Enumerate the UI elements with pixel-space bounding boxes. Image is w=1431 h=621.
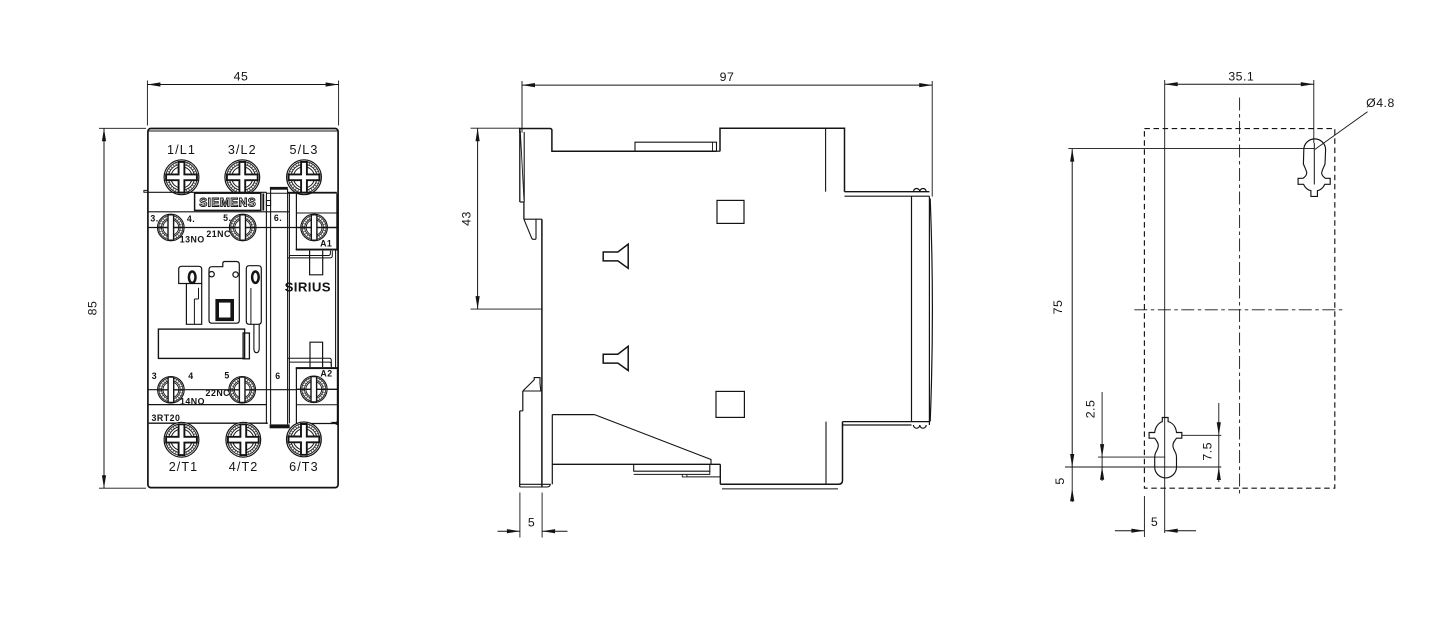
svg-text:4/T2: 4/T2 <box>229 460 259 474</box>
svg-text:5: 5 <box>528 516 535 530</box>
svg-text:7.5: 7.5 <box>1201 442 1215 461</box>
svg-text:Ø4.8: Ø4.8 <box>1366 96 1395 110</box>
svg-text:1/L1: 1/L1 <box>167 143 196 157</box>
svg-text:22NC: 22NC <box>206 388 231 398</box>
svg-text:2.5: 2.5 <box>1083 400 1097 419</box>
svg-text:43: 43 <box>459 211 473 226</box>
svg-text:6/T3: 6/T3 <box>289 460 319 474</box>
svg-text:5: 5 <box>1053 477 1067 484</box>
svg-text:SIRIUS: SIRIUS <box>285 280 331 295</box>
svg-text:5: 5 <box>1151 515 1158 529</box>
svg-text:97: 97 <box>720 70 735 84</box>
svg-text:6.: 6. <box>274 213 282 223</box>
svg-text:A1: A1 <box>320 239 332 249</box>
svg-text:45: 45 <box>234 70 249 84</box>
svg-text:SIEMENS: SIEMENS <box>199 196 256 210</box>
svg-text:3/L2: 3/L2 <box>228 143 257 157</box>
svg-text:4: 4 <box>188 371 193 381</box>
svg-text:A2: A2 <box>320 369 332 379</box>
svg-text:35.1: 35.1 <box>1228 70 1254 84</box>
svg-text:2/T1: 2/T1 <box>169 460 199 474</box>
svg-text:3: 3 <box>152 371 157 381</box>
svg-text:13NO: 13NO <box>180 235 205 245</box>
svg-text:5.: 5. <box>223 213 231 223</box>
svg-text:3RT20: 3RT20 <box>152 413 181 423</box>
svg-text:4.: 4. <box>187 214 195 224</box>
svg-text:5: 5 <box>224 371 229 381</box>
svg-text:3.: 3. <box>150 214 158 224</box>
svg-text:75: 75 <box>1051 300 1065 315</box>
svg-text:85: 85 <box>86 301 100 316</box>
svg-text:21NC: 21NC <box>206 229 231 239</box>
svg-text:6: 6 <box>275 371 280 381</box>
svg-text:5/L3: 5/L3 <box>290 143 319 157</box>
